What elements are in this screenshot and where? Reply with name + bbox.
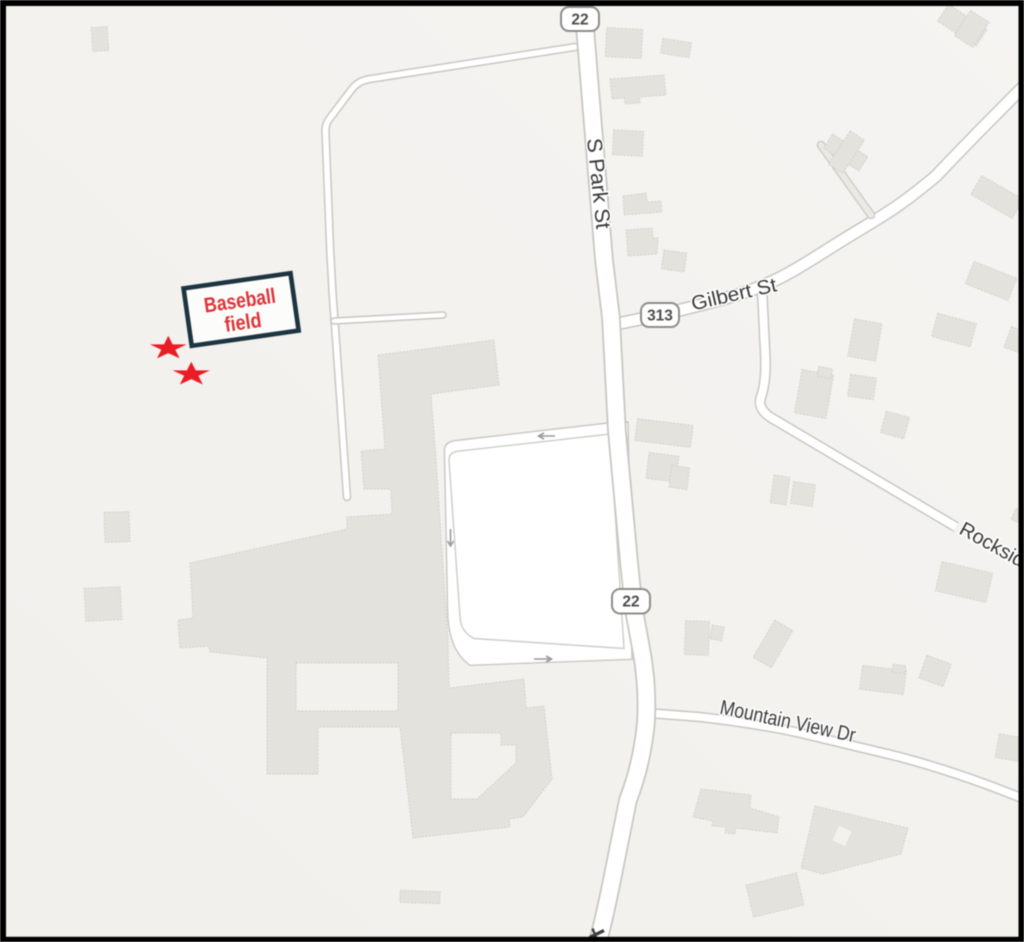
svg-text:22: 22: [622, 594, 639, 611]
svg-text:313: 313: [647, 308, 673, 325]
svg-text:22: 22: [571, 12, 588, 29]
